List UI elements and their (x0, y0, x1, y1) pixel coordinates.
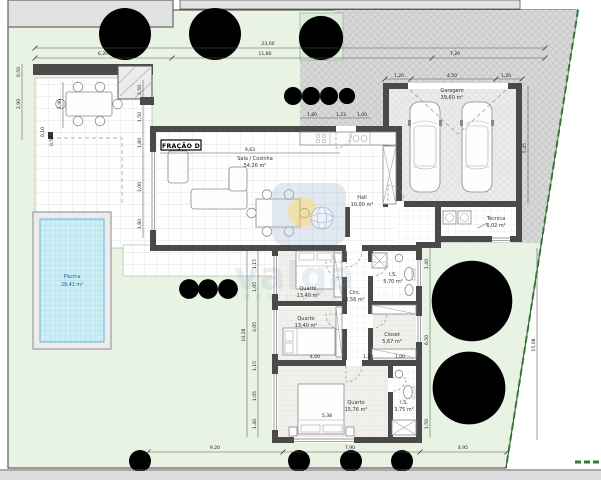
dim-label: 1,15 (252, 259, 258, 269)
dim-label: 1,80 (307, 112, 317, 118)
room-label-quarto2-name: Quarto (297, 316, 314, 322)
dim-label: 1,20 (363, 354, 373, 360)
room-label-sala-name: Sala / Cozinha (237, 156, 273, 162)
dim-label: 1,05 (252, 391, 258, 401)
shrub-circle-icon (288, 450, 310, 472)
bush-icon (179, 279, 199, 299)
dim-label: 1,00 (395, 354, 405, 360)
room-label-quarto1-name: Quarto (299, 286, 316, 292)
dim-label: 0,10 (40, 127, 46, 137)
dim-label: 1,40 (424, 259, 430, 269)
dim-label: 23,00 (261, 41, 274, 47)
neighbor-strip (180, 0, 520, 9)
tree-icon (189, 8, 241, 60)
dim-label: 15,08 (531, 338, 537, 351)
room-label-hall-name: Hall (357, 195, 367, 201)
dim-label: 5,45 (522, 143, 528, 153)
room-label-quarto2-area: 13,40 m² (295, 323, 318, 329)
room-label-garagem-name: Garagem (440, 88, 463, 94)
bush-icon (320, 87, 338, 105)
room-label-is1-name: I.S. (389, 272, 397, 278)
dim-label: 4,00 (310, 354, 320, 360)
dim-label: 1,20 (394, 73, 404, 79)
dim-label: 2,90 (16, 99, 22, 109)
dim-label: 4,50 (447, 73, 457, 79)
bush-icon (339, 88, 355, 104)
swimming-pool (33, 212, 111, 349)
dim-label: 6,50 (424, 335, 430, 345)
dim-label: 1,40 (252, 419, 258, 429)
tree-icon (432, 261, 513, 342)
dim-label: 0,50 (16, 67, 22, 77)
dim-label: 6,20 (98, 51, 108, 57)
dim-label: 1,50 (424, 419, 430, 429)
bush-icon (284, 87, 302, 105)
dim-label: 9,20 (210, 445, 220, 451)
dim-label: 3,00 (137, 182, 143, 192)
dim-label: 1,05 (252, 282, 258, 292)
floor-plan-drawing: 23,00 6,20 11,80 7,20 1,20 4,50 1,20 0,5… (0, 0, 601, 480)
room-label-is2-name: I.S. (400, 400, 408, 406)
room-label-quarto1-area: 13,40 m² (297, 293, 320, 299)
room-label-quarto3-name: Quarto (347, 400, 364, 406)
room-label-circ-name: Circ. (349, 290, 361, 296)
room-label-garagem-area: 39,60 m² (441, 95, 464, 101)
fracao-label: FRAÇÃO D (162, 141, 200, 150)
dim-label: 2,50 (137, 85, 143, 95)
floor-plan-page: 23,00 6,20 11,80 7,20 1,20 4,50 1,20 0,5… (0, 0, 601, 480)
room-label-hall-area: 10,00 m² (351, 202, 374, 208)
room-label-piscina-area: 28,41 m² (61, 282, 83, 288)
dim-label: 1,00 (357, 112, 367, 118)
dim-label: 7,20 (450, 51, 460, 57)
bush-icon (302, 87, 320, 105)
dim-label: 3,90 (57, 99, 63, 109)
dim-label: 7,90 (345, 445, 355, 451)
dim-label: 3,05 (252, 322, 258, 332)
dim-label: 1,80 (137, 219, 143, 229)
tree-icon (433, 352, 506, 425)
dim-label: 10,28 (241, 328, 247, 341)
room-label-closet-area: 5,67 m² (382, 339, 402, 345)
dim-label: 1,22 (336, 112, 346, 118)
dim-label: 4,95 (458, 445, 468, 451)
dim-label: 1,80 (137, 138, 143, 148)
room-label-closet-name: Closet (384, 332, 400, 338)
room-label-is2-area: 3,75 m² (394, 407, 414, 413)
bush-icon (198, 279, 218, 299)
room-label-tecnica-area: 6,02 m² (486, 223, 506, 229)
car (460, 102, 494, 192)
shrub-circle-icon (391, 450, 413, 472)
dim-label: 0,50 (49, 136, 55, 146)
dim-label: 9,63 (245, 147, 255, 153)
road-strip (0, 470, 601, 480)
car (408, 102, 442, 192)
room-label-quarto3-area: 15,76 m² (345, 407, 368, 413)
dim-label: 1,15 (252, 361, 258, 371)
bush-icon (218, 279, 238, 299)
room-label-is1-area: 5,70 m² (383, 279, 403, 285)
dim-label: 11,80 (258, 51, 271, 57)
dim-label: 5,38 (322, 413, 332, 419)
shrub-circle-icon (340, 450, 362, 472)
dim-label: 1,20 (501, 73, 511, 79)
room-label-sala-area: 54,26 m² (244, 163, 267, 169)
shrub-circle-icon (129, 450, 151, 472)
room-label-circ-area: 3,56 m² (345, 297, 365, 303)
room-label-tecnica-name: Técnica (486, 215, 505, 222)
dim-label: 1,50 (137, 112, 143, 122)
room-label-piscina-name: Piscina (64, 274, 81, 280)
tree-icon (299, 16, 343, 60)
